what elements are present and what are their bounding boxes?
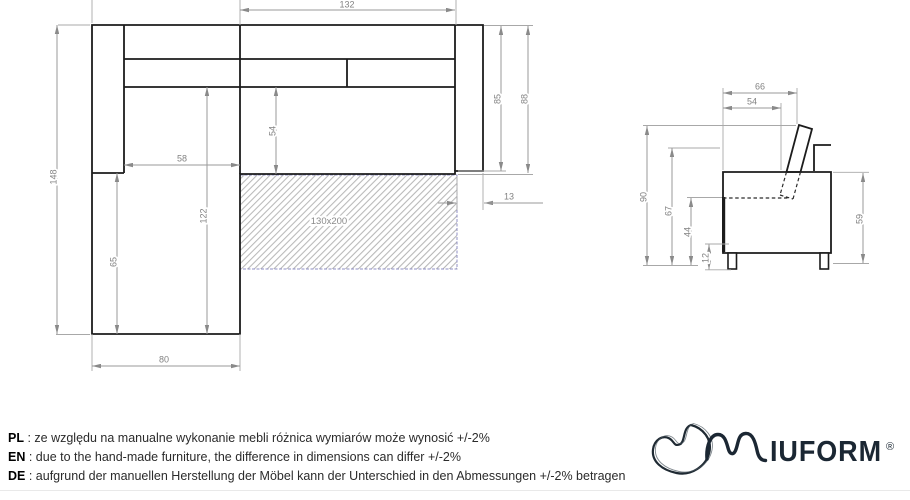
dim-side-length-label: 88	[520, 94, 530, 104]
dim-chaise-inner-width: 58	[124, 154, 240, 166]
dim-back-width: 132	[240, 0, 455, 10]
dim-side-length: 88	[520, 26, 530, 173]
dim-armrest-length: 85	[493, 26, 503, 171]
note-de-lang: DE	[8, 469, 25, 483]
mattress-area: 130x200	[240, 175, 457, 269]
technical-drawing-page: 130x200	[0, 0, 910, 500]
dim-total-height: 90	[639, 126, 649, 265]
registered-trademark-symbol: ®	[886, 441, 894, 453]
dim-seat-depth-label: 54	[268, 126, 278, 136]
dim-arm-top-width-label: 66	[755, 82, 765, 92]
side-view: 66 54 90 67 44 12	[639, 82, 870, 270]
dim-body-height-label: 59	[855, 214, 865, 224]
bean-icon	[653, 424, 713, 474]
dim-body-height: 59	[855, 173, 865, 263]
miuform-logo-graphic: IUFORM ®	[645, 413, 910, 485]
note-pl-separator: :	[24, 431, 34, 445]
dim-back-height: 67	[664, 148, 674, 265]
note-en-text: due to the hand-made furniture, the diff…	[36, 450, 461, 464]
note-en-lang: EN	[8, 450, 25, 464]
dim-chaise-depth-label: 122	[199, 208, 209, 223]
dim-seat-top-width-label: 54	[747, 97, 757, 107]
dim-armrest-length-label: 85	[493, 94, 503, 104]
dim-chaise-width: 80	[92, 355, 240, 367]
note-de-separator: :	[25, 469, 35, 483]
dim-seat-height-label: 44	[683, 227, 693, 237]
dim-chaise-depth: 122	[199, 87, 209, 334]
dim-chaise-front-depth: 65	[109, 173, 119, 334]
dim-chaise-inner-width-label: 58	[177, 154, 187, 164]
note-en: EN : due to the hand-made furniture, the…	[8, 448, 625, 467]
dim-total-depth: 148	[49, 25, 59, 334]
note-de-text: aufgrund der manuellen Herstellung der M…	[36, 469, 626, 483]
dim-seat-top-width: 54	[723, 97, 781, 109]
side-view-outline	[723, 125, 831, 269]
note-pl-text: ze względu na manualne wykonanie mebli r…	[34, 431, 489, 445]
miuform-logo: IUFORM ®	[645, 413, 910, 485]
dim-chaise-front-depth-label: 65	[109, 257, 119, 267]
dim-leg-height: 12	[701, 245, 711, 270]
note-pl-lang: PL	[8, 431, 24, 445]
sofa-dimension-drawing: 130x200	[0, 0, 910, 412]
front-leg	[728, 253, 737, 269]
note-de: DE : aufgrund der manuellen Herstellung …	[8, 467, 625, 486]
dim-total-depth-label: 148	[49, 169, 59, 184]
dim-seat-height: 44	[683, 198, 693, 265]
dim-armrest-offset-label: 13	[504, 192, 514, 202]
dim-total-height-label: 90	[639, 192, 649, 202]
mattress-hatch	[240, 175, 457, 269]
mattress-size-label: 130x200	[311, 216, 347, 227]
note-en-separator: :	[25, 450, 35, 464]
headrest-cushion	[787, 125, 813, 172]
side-view-extension-lines	[643, 88, 869, 270]
dim-back-width-label: 132	[339, 0, 354, 10]
note-pl: PL : ze względu na manualne wykonanie me…	[8, 429, 625, 448]
brand-wordmark: IUFORM	[770, 436, 882, 468]
dim-back-height-label: 67	[664, 206, 674, 216]
dim-chaise-width-label: 80	[159, 355, 169, 365]
top-view: 130x200	[49, 0, 544, 371]
back-leg	[820, 253, 829, 269]
bottom-divider	[0, 490, 910, 491]
brand-m-wave	[707, 433, 766, 460]
dim-leg-height-label: 12	[701, 253, 711, 263]
footer-notes: PL : ze względu na manualne wykonanie me…	[8, 429, 625, 486]
dim-seat-depth: 54	[268, 87, 278, 174]
dim-arm-top-width: 66	[723, 82, 797, 94]
